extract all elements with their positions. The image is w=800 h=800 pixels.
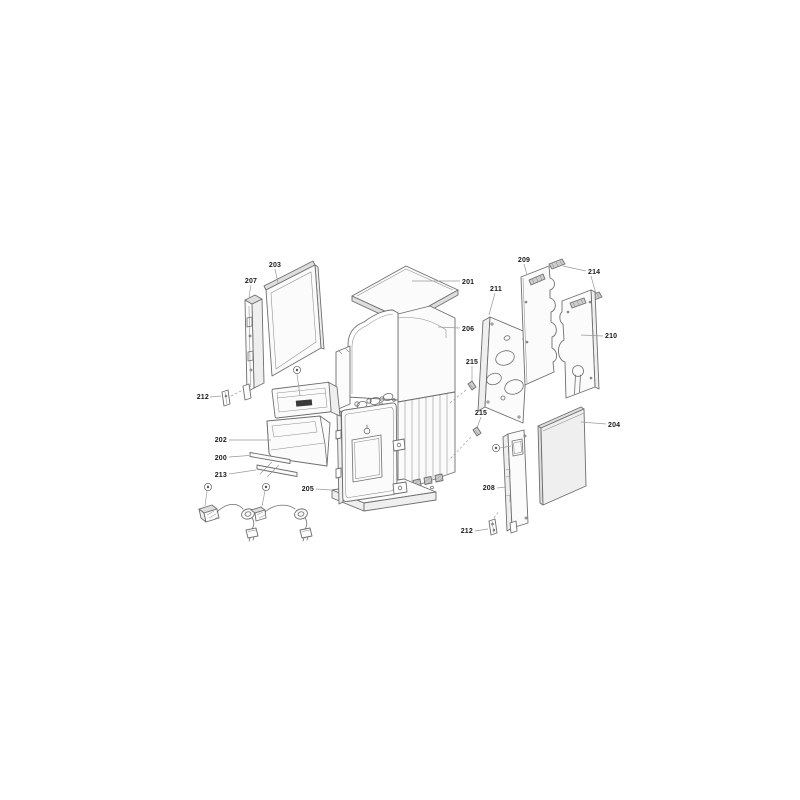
part-label-206: 206: [462, 326, 474, 333]
part-label-209: 209: [518, 257, 530, 264]
part-208-jacket-strip: 208: [483, 430, 528, 533]
part-213-trim-strip: 213: [215, 462, 297, 479]
part-label-214: 214: [588, 269, 600, 276]
part-203-front-panel: 203: [264, 261, 324, 376]
part-210-insulation-panel: 210: [558, 290, 617, 398]
part-label-201: 201: [462, 279, 474, 286]
part-label-212-left: 212: [197, 394, 209, 401]
heat-exchanger-block: [398, 392, 455, 493]
part-204-side-panel: 204: [538, 407, 620, 505]
diagram-canvas: 201 206: [0, 0, 800, 800]
part-label-213: 213: [215, 472, 227, 479]
part-212-bracket-left: 212: [197, 390, 243, 406]
part-label-208: 208: [483, 485, 495, 492]
fastener-callout-icon: [262, 483, 270, 506]
exploded-view-drawing: 201 206: [0, 0, 800, 800]
boiler-door: [336, 397, 407, 504]
part-label-204: 204: [608, 422, 620, 429]
part-label-212-right: 212: [461, 528, 473, 535]
cable-assembly-left: [199, 483, 258, 541]
control-panel-module: [272, 366, 340, 418]
part-212-bracket-right: 212: [461, 511, 499, 535]
part-label-203: 203: [269, 262, 281, 269]
part-207-mounting-rail: 207: [243, 278, 264, 400]
part-label-210: 210: [605, 333, 617, 340]
part-label-202: 202: [215, 437, 227, 444]
part-label-205: 205: [302, 486, 314, 493]
part-label-215-upper: 215: [466, 359, 478, 366]
part-211-mounting-plate: 211: [478, 286, 528, 423]
part-label-211: 211: [490, 286, 502, 293]
part-label-215-lower: 215: [475, 410, 487, 417]
part-label-207: 207: [245, 278, 257, 285]
part-label-200: 200: [215, 455, 227, 462]
fastener-callout-icon: [204, 483, 211, 506]
